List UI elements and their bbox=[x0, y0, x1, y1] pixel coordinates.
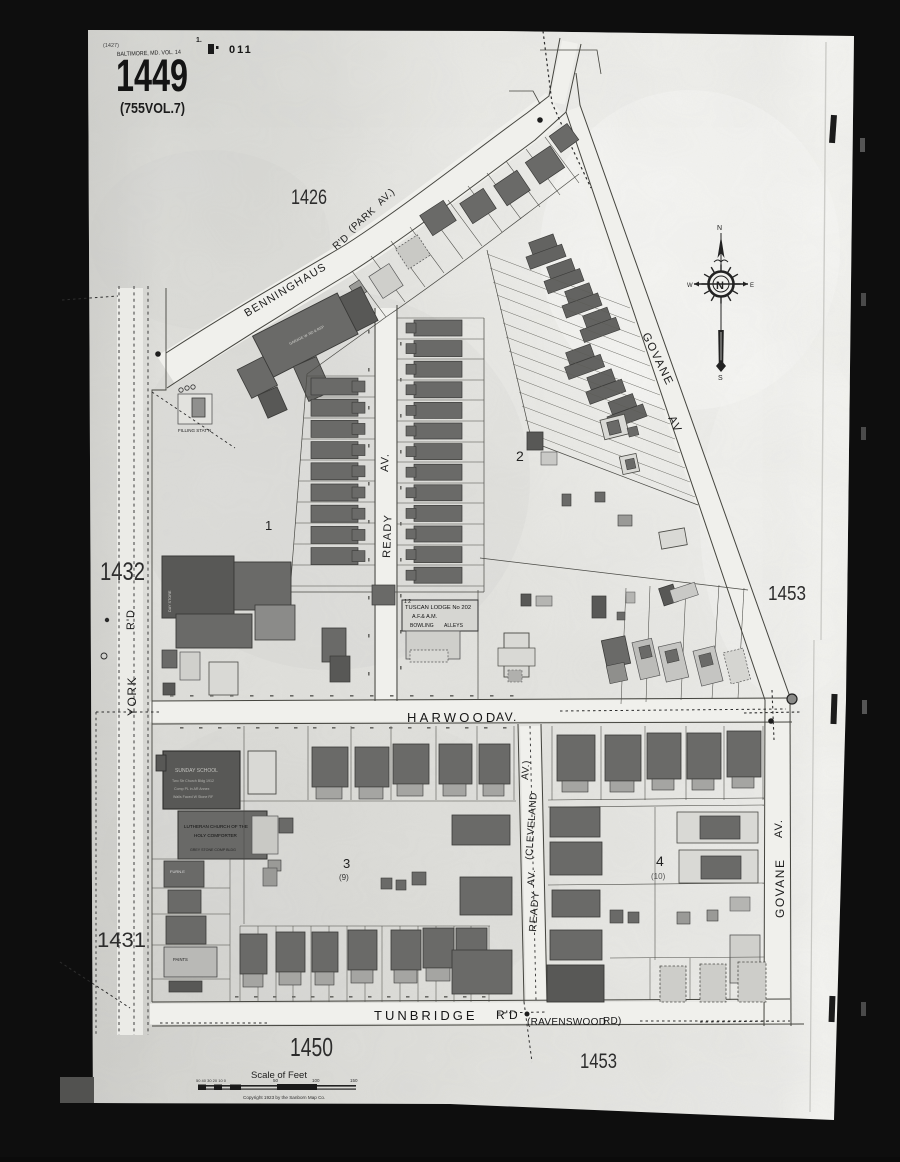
svg-text:011: 011 bbox=[229, 44, 253, 56]
svg-text:(RAVENSWOOD: (RAVENSWOOD bbox=[527, 1017, 606, 1028]
svg-text:1453: 1453 bbox=[768, 583, 806, 605]
svg-text:1426: 1426 bbox=[291, 186, 327, 209]
svg-text:ALLEYS: ALLEYS bbox=[444, 623, 464, 629]
svg-text:SUNDAY SCHOOL: SUNDAY SCHOOL bbox=[175, 768, 218, 774]
svg-text:A.F.& A.M.: A.F.& A.M. bbox=[412, 614, 437, 620]
svg-text:50 40 30 20 10 0: 50 40 30 20 10 0 bbox=[196, 1078, 227, 1083]
svg-text:(10): (10) bbox=[651, 872, 666, 881]
svg-text:S: S bbox=[718, 375, 723, 382]
svg-text:1453: 1453 bbox=[580, 1050, 617, 1073]
svg-text:AV.): AV.) bbox=[520, 760, 532, 781]
svg-text:HOLY COMFORTER: HOLY COMFORTER bbox=[194, 833, 238, 838]
svg-text:1431: 1431 bbox=[97, 929, 146, 952]
svg-text:Walls Faced W Stone RF: Walls Faced W Stone RF bbox=[173, 795, 214, 799]
svg-text:GREY STONE COMP BLDG: GREY STONE COMP BLDG bbox=[190, 848, 236, 852]
svg-text:HARWOOD: HARWOOD bbox=[407, 710, 499, 725]
svg-text:READY: READY bbox=[381, 514, 395, 558]
svg-text:R'D: R'D bbox=[125, 609, 137, 630]
svg-text:LUTHERAN CHURCH OF THE: LUTHERAN CHURCH OF THE bbox=[184, 824, 248, 829]
svg-text:1432: 1432 bbox=[100, 558, 145, 586]
svg-text:AV.: AV. bbox=[496, 710, 518, 724]
svg-text:(9): (9) bbox=[339, 873, 349, 882]
svg-text:Scale of Feet: Scale of Feet bbox=[251, 1070, 307, 1081]
svg-text:AV.: AV. bbox=[379, 453, 392, 472]
svg-text:AV.: AV. bbox=[526, 869, 538, 887]
svg-text:YORK: YORK bbox=[125, 676, 139, 716]
svg-text:(755VOL.7): (755VOL.7) bbox=[120, 100, 185, 117]
svg-text:BOWLING: BOWLING bbox=[410, 623, 434, 629]
svg-text:N: N bbox=[717, 225, 722, 232]
svg-text:E: E bbox=[750, 283, 754, 289]
svg-text:Copyright 1923 by the Sanborn: Copyright 1923 by the Sanborn Map Co. bbox=[243, 1095, 325, 1100]
svg-text:AV.: AV. bbox=[773, 819, 785, 838]
svg-text:PAINTS: PAINTS bbox=[173, 957, 188, 962]
svg-text:Comp PL in AR Annex: Comp PL in AR Annex bbox=[174, 787, 210, 791]
svg-text:2: 2 bbox=[516, 448, 524, 464]
svg-text:50: 50 bbox=[273, 1078, 279, 1083]
svg-text:RD): RD) bbox=[603, 1016, 622, 1027]
svg-text:TUSCAN LODGE No 202: TUSCAN LODGE No 202 bbox=[405, 605, 471, 611]
svg-text:(1427): (1427) bbox=[103, 43, 119, 49]
svg-text:TUNBRIDGE: TUNBRIDGE bbox=[374, 1008, 478, 1023]
svg-text:FILLING STAT'N: FILLING STAT'N bbox=[178, 428, 211, 433]
svg-text:4: 4 bbox=[656, 853, 664, 869]
svg-text:150: 150 bbox=[350, 1078, 358, 1083]
svg-text:GOVANE: GOVANE bbox=[773, 859, 787, 918]
svg-text:FURN.E: FURN.E bbox=[170, 869, 185, 874]
svg-text:W: W bbox=[687, 283, 693, 289]
svg-text:DAY STORE: DAY STORE bbox=[168, 590, 172, 612]
svg-text:Two Str Church Bldg 1912: Two Str Church Bldg 1912 bbox=[172, 779, 214, 783]
svg-text:1 2: 1 2 bbox=[404, 599, 411, 605]
svg-text:3: 3 bbox=[343, 856, 350, 871]
svg-text:N: N bbox=[716, 280, 724, 292]
svg-text:1449: 1449 bbox=[116, 50, 188, 101]
svg-text:1: 1 bbox=[265, 518, 272, 533]
svg-text:R'D: R'D bbox=[496, 1008, 519, 1022]
svg-text:1.: 1. bbox=[196, 37, 202, 44]
svg-text:100: 100 bbox=[312, 1078, 320, 1083]
svg-text:1450: 1450 bbox=[290, 1032, 333, 1062]
